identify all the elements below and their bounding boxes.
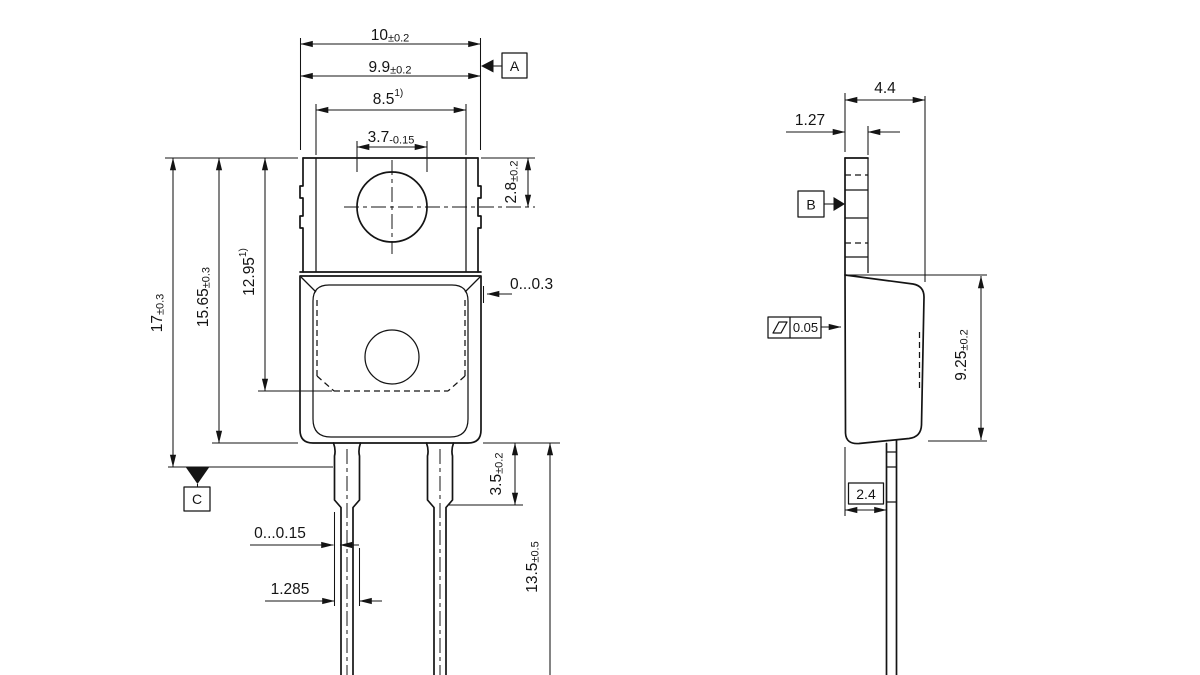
tab-left-edge bbox=[300, 158, 303, 272]
datum-a: A bbox=[481, 53, 527, 78]
body-chamfer-left bbox=[301, 277, 316, 292]
fcf-tolerance-value: 0.05 bbox=[793, 320, 818, 335]
basic-dim-2.4: 2.4 bbox=[849, 483, 884, 504]
dim-text-9.9: 9.9±0.2 bbox=[369, 59, 412, 77]
body-outline bbox=[300, 276, 481, 443]
body-chamfer-right bbox=[465, 277, 480, 292]
side-body-outline bbox=[845, 275, 924, 444]
tab-right-edge bbox=[478, 158, 481, 272]
dim-text-13.5: 13.5±0.5 bbox=[524, 541, 542, 593]
dim-text-2.8: 2.8±0.2 bbox=[503, 161, 521, 204]
body-dimple-circle bbox=[365, 330, 419, 384]
datum-c: C bbox=[184, 468, 210, 512]
hidden-tab-corner-left bbox=[317, 376, 334, 391]
side-view: 0.05 B bbox=[768, 80, 987, 675]
datum-b: B bbox=[798, 191, 845, 217]
flatness-control-frame: 0.05 bbox=[768, 317, 841, 338]
body-inner-face bbox=[313, 285, 468, 437]
dim-text-3.5: 3.5±0.2 bbox=[488, 453, 506, 496]
front-view: A C 10±0.2 9.9±0.2 8.51) 3.7-0.15 2.8±0.… bbox=[149, 27, 560, 675]
datum-b-label: B bbox=[806, 197, 815, 213]
lead-right-inner bbox=[427, 443, 435, 675]
side-part-outline bbox=[845, 158, 924, 675]
dim-text-gap-top: 0...0.3 bbox=[510, 276, 553, 293]
dim-text-10: 10±0.2 bbox=[371, 27, 410, 45]
datum-a-triangle bbox=[481, 60, 494, 73]
dim-text-8.5: 8.51) bbox=[373, 88, 403, 108]
technical-drawing-page: A C 10±0.2 9.9±0.2 8.51) 3.7-0.15 2.8±0.… bbox=[0, 0, 1200, 675]
hidden-tab-corner-right bbox=[448, 376, 465, 391]
datum-b-triangle bbox=[834, 197, 846, 211]
dim-text-3.7: 3.7-0.15 bbox=[368, 129, 415, 147]
dim-text-1.285: 1.285 bbox=[271, 581, 310, 598]
dim-text-12.95: 12.951) bbox=[238, 248, 258, 296]
front-dimension-lines bbox=[173, 44, 550, 675]
flatness-symbol-icon bbox=[773, 322, 787, 333]
dimension-drawing-canvas: A C 10±0.2 9.9±0.2 8.51) 3.7-0.15 2.8±0.… bbox=[0, 0, 1200, 675]
datum-c-label: C bbox=[192, 491, 202, 507]
front-part-outline bbox=[300, 158, 535, 675]
front-dimension-texts: 10±0.2 9.9±0.2 8.51) 3.7-0.15 2.8±0.2 17… bbox=[149, 27, 553, 598]
dim-text-9.25: 9.25±0.2 bbox=[953, 329, 971, 381]
dim-text-4.4: 4.4 bbox=[874, 80, 896, 97]
front-extension-lines bbox=[165, 38, 560, 606]
dim-text-1.27: 1.27 bbox=[795, 112, 825, 129]
side-dimension-lines bbox=[786, 100, 981, 510]
dim-text-15.65: 15.65±0.3 bbox=[195, 267, 213, 327]
dim-text-offset: 0...0.15 bbox=[254, 525, 306, 542]
side-extension-lines bbox=[845, 93, 987, 516]
dim-text-17: 17±0.3 bbox=[149, 294, 167, 333]
datum-a-label: A bbox=[510, 58, 520, 74]
datum-c-triangle bbox=[186, 468, 209, 485]
dim-text-2.4: 2.4 bbox=[856, 486, 876, 502]
lead-right-outer bbox=[446, 443, 454, 675]
